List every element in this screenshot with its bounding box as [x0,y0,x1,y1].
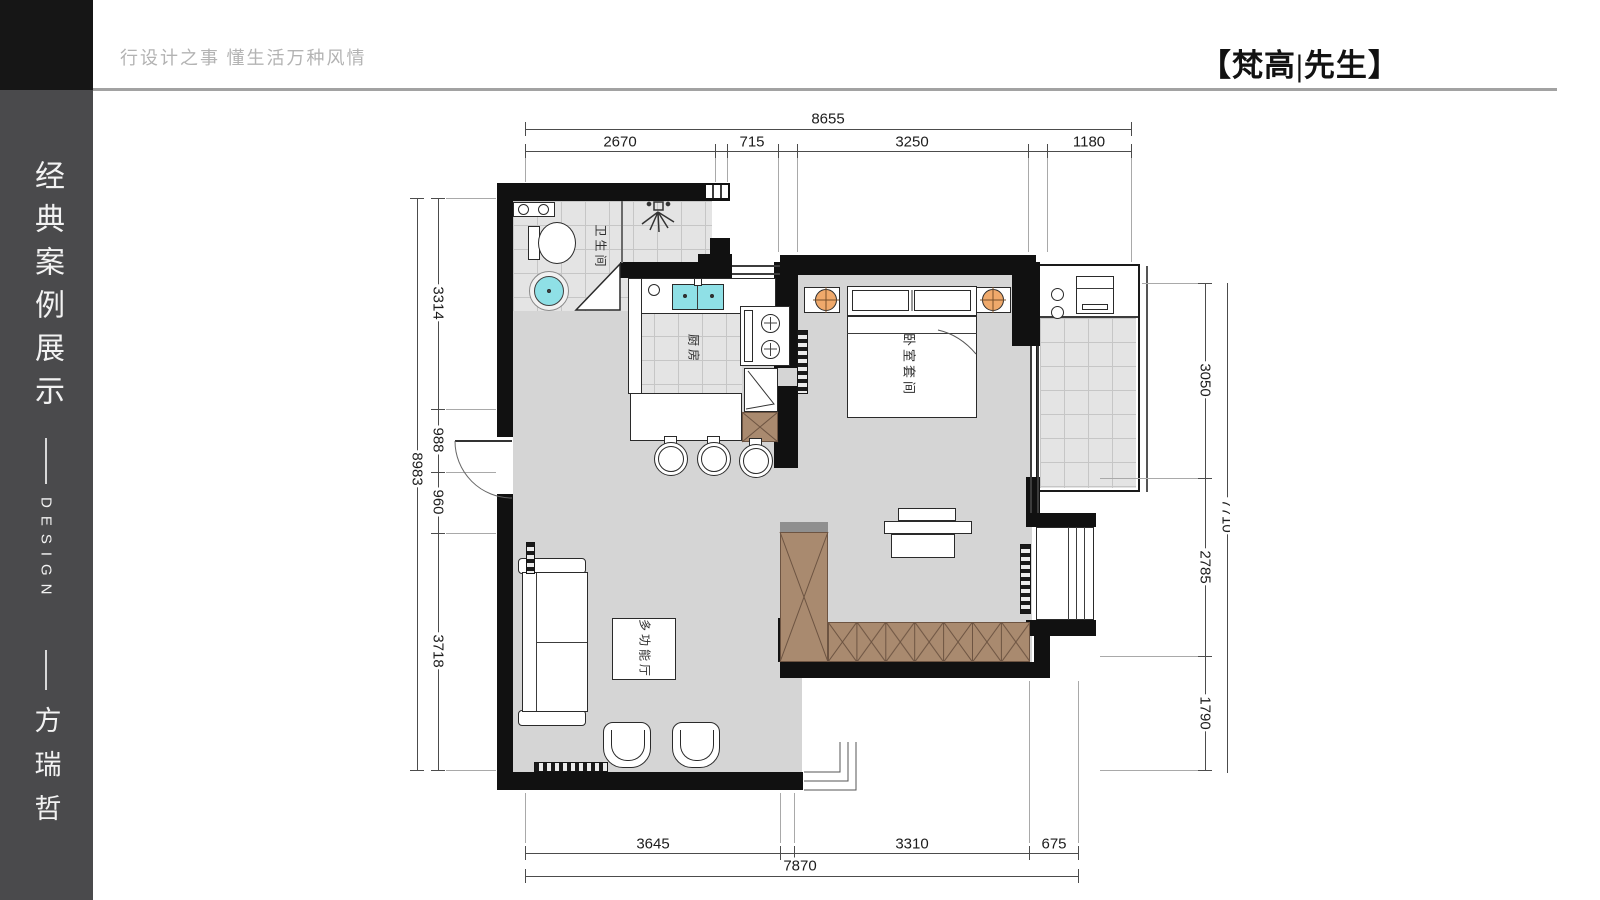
dim-extension-line [525,793,526,843]
sidebar-author: 方瑞哲 [27,706,66,838]
dim-tick [431,409,445,410]
dim-extension-line [1100,656,1198,657]
dim-tick [1078,846,1079,860]
dim-line-top-overall [525,129,1131,130]
dim-tick [715,144,716,158]
dim-extension-line [446,770,496,771]
kitchen-sink-divider [697,284,698,310]
radiator [1020,544,1031,614]
table-lamp [982,289,1004,311]
dim-label: 3050 [1197,361,1214,398]
dim-tick [1198,283,1212,284]
bay-window-glazing [1076,527,1077,620]
wall-corner [1012,262,1040,346]
exterior-platform-lines [804,742,856,790]
dim-tick [1198,656,1212,657]
table-lamp [815,289,837,311]
dim-label-clip-overlay [1230,488,1246,544]
dim-tick [525,122,526,136]
dim-tick [1131,144,1132,158]
kitchen-counter-strip [628,278,642,394]
dim-extension-line [727,158,728,182]
dim-label: 1790 [1197,694,1214,731]
headboard-panel [914,290,971,311]
armchair-seat [611,730,645,761]
wall-segment [497,183,730,201]
kitchen-drain-circle [648,284,660,296]
wall-segment [497,772,803,790]
dim-tick [1131,122,1132,136]
stove-burner [761,340,780,359]
header-divider [93,88,1557,91]
wardrobe-top-strip [780,522,828,532]
balcony-faucet-circle [1051,306,1064,319]
dim-label: 3645 [634,836,671,853]
dim-label: 7870 [781,858,818,875]
bay-window [1036,527,1094,620]
bar-stool-inner [658,446,684,472]
dim-label: 3310 [893,836,930,853]
dim-tick [431,533,445,534]
dim-label: 988 [430,425,447,454]
balcony-faucet-circle [1051,288,1064,301]
washing-machine-controls [1082,304,1108,310]
dim-extension-line [1142,283,1198,284]
dim-tick [410,770,424,771]
wall-column [710,238,730,254]
dim-extension-line [1131,158,1132,262]
sidebar: 经典案例展示 DESIGN 方瑞哲 [0,0,93,900]
sink-drain [710,294,714,298]
dim-label: 2670 [601,134,638,151]
dim-extension-line [780,793,781,843]
wall-segment [497,183,513,437]
armchair-seat [680,730,714,761]
dim-line-top-segments [525,151,1131,152]
dim-label: 8655 [809,111,846,128]
dim-label: 3250 [893,134,930,151]
dim-tick [797,144,798,158]
dim-extension-line [1028,158,1029,252]
dim-label: 1180 [1071,134,1107,151]
wall-bay-top [1026,513,1096,527]
bar-counter [630,393,742,441]
dim-tick [1029,846,1030,860]
dim-extension-line [1047,158,1048,252]
desk-part [884,521,972,534]
dim-label: 960 [430,487,447,516]
wardrobe-horizontal [828,622,1030,662]
stove-burner [761,314,780,333]
tile-floor-balcony [1040,318,1136,488]
presentation-slide: 经典案例展示 DESIGN 方瑞哲 行设计之事 懂生活万种风情 【梵高|先生】 [0,0,1600,900]
sidebar-top-block [0,0,93,90]
sofa-armrest [518,710,586,726]
dim-extension-line [446,533,496,534]
dim-extension-line [797,158,798,252]
radiator [797,330,808,394]
sink-faucet [694,278,702,286]
sink-drain [683,294,687,298]
dim-tick [525,846,526,860]
dim-label: 3718 [430,632,447,669]
dim-label: 3314 [430,284,447,321]
balcony-outer-rail-line [1146,266,1148,492]
stove-side-panel [744,310,753,362]
sidebar-design-label: DESIGN [38,497,55,603]
washing-machine-lid-line [1077,288,1113,289]
headboard-panel [852,290,909,311]
dim-label: 2785 [1197,548,1214,585]
toilet-bowl [538,222,576,264]
dim-extension-line [446,472,496,473]
wall-segment [780,255,1036,275]
bathroom-valve-circle [518,204,529,215]
basin-drain [547,289,551,293]
dim-extension-line [794,793,795,843]
header-brand: 【梵高|先生】 [1200,40,1400,85]
entry-door-swing [455,441,512,498]
wall-segment [620,262,732,278]
dim-extension-line [446,198,496,199]
dim-line-bottom-overall [525,876,1078,877]
dim-extension-line [1100,478,1198,479]
bar-stool-inner [701,446,727,472]
dim-extension-line [778,158,779,252]
dim-line-bottom-segments [525,853,1078,854]
dim-label: 8983 [409,450,426,487]
dim-extension-line [715,158,716,182]
wall-bay-bottom [1026,620,1096,636]
dim-tick [1028,144,1029,158]
radiator [534,762,608,772]
wall-segment [497,494,513,790]
dim-tick [1198,478,1212,479]
dim-tick [1047,144,1048,158]
bar-stool-inner [743,448,769,474]
kitchen-double-sink [672,284,724,310]
dim-tick [410,198,424,199]
dim-tick [1078,869,1079,883]
header-slogan: 行设计之事 懂生活万种风情 [120,44,367,70]
wall-segment [780,662,1050,678]
entry-door-opening [497,437,513,494]
bedroom-balcony-window-line [1037,346,1039,513]
bathroom-partition-line [621,201,623,263]
dim-tick [525,144,526,158]
room-label-hall: 多功能厅 [637,619,654,679]
dim-label: 715 [737,134,766,151]
sofa-cushion-line [537,642,587,643]
window-mullion [712,185,714,198]
dim-tick [431,198,445,199]
bedroom-balcony-window-line [1030,346,1032,513]
radiator [526,542,535,574]
window-mullion [720,185,722,198]
desk-part [898,508,956,521]
pass-through-window-line [732,265,780,267]
window-top-wall [706,185,728,198]
dim-extension-line [1100,770,1198,771]
sidebar-divider [45,438,47,484]
room-label-kitchen: 厨房 [686,334,703,364]
desk-part [891,534,955,558]
wardrobe-vertical [780,532,828,662]
dim-extension-line [446,409,496,410]
sidebar-divider [45,650,47,690]
dim-extension-line [1029,681,1030,843]
dim-tick [431,770,445,771]
dim-extension-line [1078,681,1079,843]
kitchen-cabinet [744,368,778,412]
bay-window-glazing [1084,527,1085,620]
bay-window-glazing [1068,527,1069,620]
room-label-bedroom: 卧室套间 [901,333,920,397]
dim-extension-line [525,158,526,182]
dim-label: 675 [1039,836,1068,853]
bathroom-valve-circle [538,204,549,215]
sidebar-title: 经典案例展示 [24,160,68,418]
dim-tick [778,144,779,158]
pass-through-window-line [732,273,780,275]
dim-tick [525,869,526,883]
dim-tick [431,472,445,473]
room-label-bathroom: 卫生间 [593,224,610,269]
dim-tick [1198,770,1212,771]
dim-tick [727,144,728,158]
